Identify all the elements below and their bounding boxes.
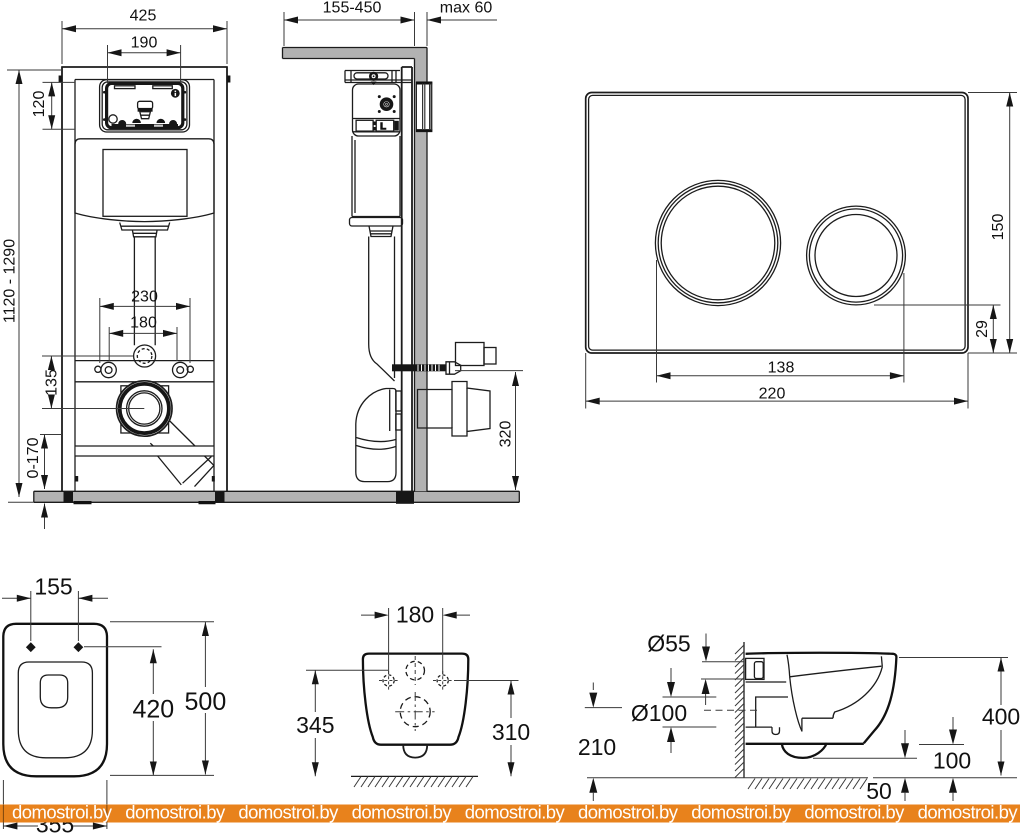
svg-text:domostroi.by: domostroi.by — [691, 802, 792, 823]
svg-text:155: 155 — [34, 574, 72, 600]
svg-text:180: 180 — [396, 601, 434, 627]
svg-text:domostroi.by: domostroi.by — [238, 802, 339, 823]
svg-text:500: 500 — [185, 688, 227, 716]
svg-text:0-170: 0-170 — [25, 437, 42, 478]
svg-text:1120 - 1290: 1120 - 1290 — [2, 239, 19, 323]
svg-text:120: 120 — [31, 91, 48, 118]
svg-text:domostroi.by: domostroi.by — [804, 802, 905, 823]
svg-text:Ø55: Ø55 — [647, 630, 690, 656]
svg-text:310: 310 — [492, 719, 530, 745]
svg-text:345: 345 — [296, 712, 334, 738]
svg-text:138: 138 — [768, 359, 795, 376]
svg-text:135: 135 — [44, 369, 61, 396]
svg-text:29: 29 — [974, 320, 991, 338]
svg-text:210: 210 — [578, 734, 616, 760]
svg-text:420: 420 — [132, 696, 174, 724]
svg-text:400: 400 — [982, 704, 1020, 730]
svg-text:155-450: 155-450 — [323, 0, 382, 17]
svg-text:425: 425 — [130, 8, 157, 25]
svg-text:domostroi.by: domostroi.by — [918, 802, 1019, 823]
svg-text:180: 180 — [130, 315, 157, 332]
svg-text:320: 320 — [498, 421, 515, 448]
svg-text:230: 230 — [131, 289, 158, 306]
svg-text:Ø100: Ø100 — [631, 700, 687, 726]
svg-text:190: 190 — [131, 35, 158, 52]
svg-text:domostroi.by: domostroi.by — [578, 802, 679, 823]
svg-text:domostroi.by: domostroi.by — [125, 802, 226, 823]
svg-text:150: 150 — [990, 214, 1007, 241]
svg-text:domostroi.by: domostroi.by — [465, 802, 566, 823]
svg-text:domostroi.by: domostroi.by — [352, 802, 453, 823]
svg-text:220: 220 — [759, 385, 786, 402]
svg-text:max 60: max 60 — [440, 0, 493, 17]
svg-text:100: 100 — [933, 748, 971, 774]
svg-text:50: 50 — [866, 778, 892, 804]
svg-text:domostroi.by: domostroi.by — [12, 802, 113, 823]
